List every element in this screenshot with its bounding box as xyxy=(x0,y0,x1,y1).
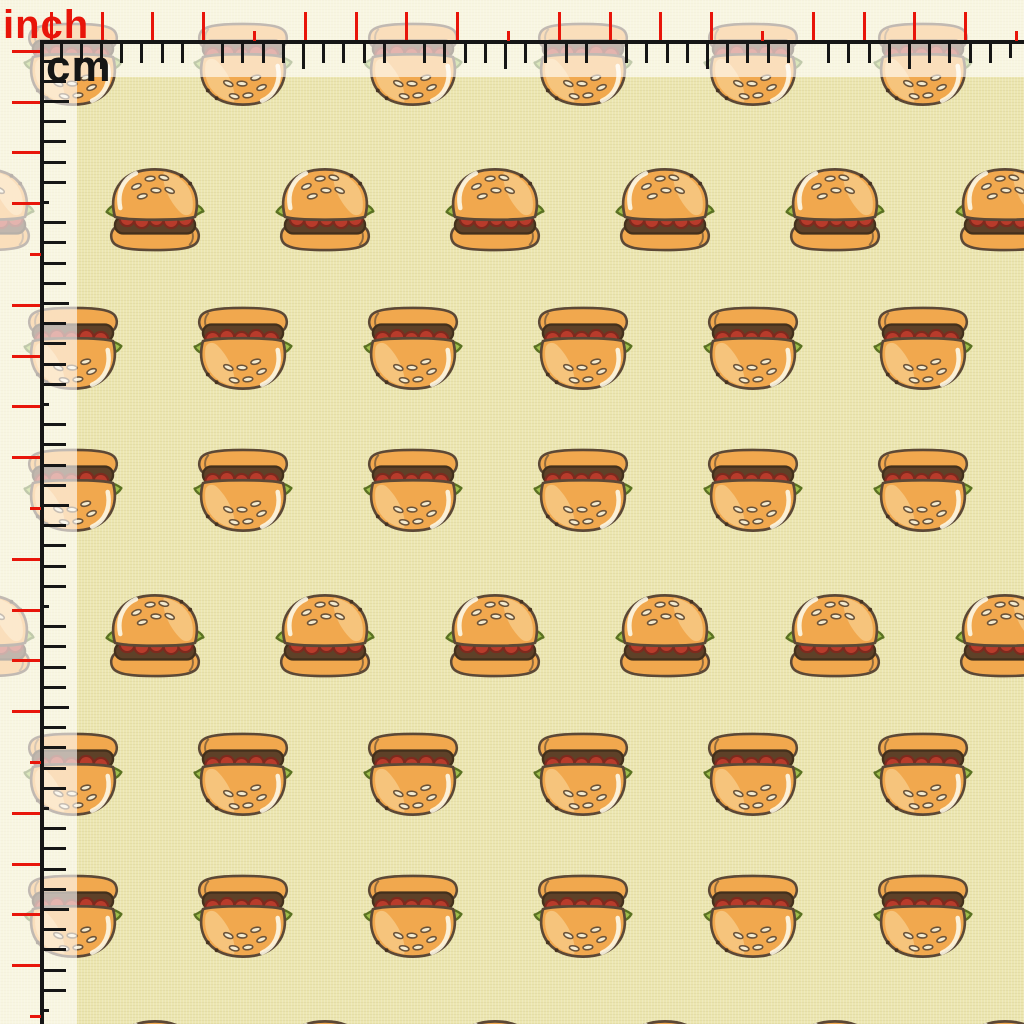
burger-motif-inverted xyxy=(872,732,974,820)
cm-tick xyxy=(44,363,66,366)
cm-tick xyxy=(969,44,972,63)
cm-tick xyxy=(44,565,66,568)
burger-motif-upright xyxy=(954,1016,1024,1024)
burger-motif-inverted xyxy=(362,448,464,536)
inch-tick xyxy=(304,12,307,40)
cm-tick xyxy=(524,44,527,63)
cm-tick xyxy=(44,948,66,951)
inch-tick xyxy=(609,12,612,40)
burger-motif-upright xyxy=(784,590,886,678)
burger-motif-inverted xyxy=(872,306,974,394)
burger-motif-inverted xyxy=(362,306,464,394)
cm-tick-major xyxy=(42,807,49,810)
burger-motif-inverted xyxy=(362,874,464,962)
cm-tick xyxy=(383,44,386,63)
inch-tick-major xyxy=(30,253,41,256)
cm-tick xyxy=(282,44,285,63)
cm-tick xyxy=(44,706,69,709)
burger-motif-upright xyxy=(274,164,376,252)
cm-tick xyxy=(544,44,547,63)
inch-tick xyxy=(12,964,40,967)
cm-tick xyxy=(948,44,951,63)
burger-motif-inverted xyxy=(702,448,804,536)
cm-tick xyxy=(181,44,184,63)
cm-tick xyxy=(44,625,66,628)
burger-motif-upright xyxy=(784,164,886,252)
burger-motif-inverted xyxy=(532,448,634,536)
burger-motif-upright xyxy=(614,590,716,678)
inch-tick xyxy=(12,405,40,408)
cm-tick xyxy=(161,44,164,63)
cm-tick xyxy=(44,282,66,285)
cm-tick xyxy=(484,44,487,63)
cm-tick xyxy=(44,787,66,790)
fabric-swatch-preview: inch cm xyxy=(0,0,1024,1024)
inch-tick xyxy=(12,304,40,307)
cm-scale-line-top xyxy=(40,40,1024,44)
cm-tick xyxy=(44,524,66,527)
inch-tick xyxy=(558,12,561,40)
cm-tick xyxy=(464,44,467,63)
cm-tick xyxy=(565,44,568,63)
cm-tick xyxy=(44,666,66,669)
cm-tick xyxy=(908,44,911,69)
burger-motif-upright xyxy=(104,1016,206,1024)
inch-tick xyxy=(456,12,459,40)
cm-tick xyxy=(44,140,66,143)
cm-tick-major xyxy=(42,403,49,406)
cm-tick xyxy=(44,302,69,305)
inch-tick-major xyxy=(30,507,41,510)
burger-motif-inverted xyxy=(702,732,804,820)
cm-tick xyxy=(44,504,69,507)
cm-tick xyxy=(44,262,66,265)
cm-tick xyxy=(767,44,770,63)
cm-tick xyxy=(44,423,66,426)
inch-tick xyxy=(12,659,40,662)
cm-tick xyxy=(706,44,709,69)
cm-tick xyxy=(44,161,66,164)
cm-tick-major xyxy=(42,605,49,608)
cm-tick xyxy=(726,44,729,63)
inch-tick xyxy=(12,609,40,612)
inch-tick-major xyxy=(30,761,41,764)
inch-tick-major xyxy=(30,1015,41,1018)
cm-tick-major xyxy=(1009,44,1012,58)
cm-tick xyxy=(44,181,66,184)
cm-tick xyxy=(44,928,66,931)
inch-tick-major xyxy=(761,31,764,41)
cm-tick xyxy=(44,827,66,830)
cm-tick xyxy=(140,44,143,63)
burger-motif-inverted xyxy=(362,732,464,820)
burger-motif-upright xyxy=(614,1016,716,1024)
cm-tick xyxy=(928,44,931,63)
cm-tick xyxy=(44,686,66,689)
inch-tick xyxy=(710,12,713,40)
burger-motif-inverted xyxy=(532,306,634,394)
cm-tick xyxy=(322,44,325,63)
inch-tick xyxy=(12,355,40,358)
cm-tick xyxy=(262,44,265,63)
burger-motif-inverted xyxy=(872,448,974,536)
inch-tick xyxy=(12,558,40,561)
cm-tick xyxy=(585,44,588,63)
cm-tick xyxy=(847,44,850,63)
cm-tick xyxy=(44,585,66,588)
inch-tick-major xyxy=(253,31,256,41)
burger-motif-upright xyxy=(444,1016,546,1024)
inch-tick xyxy=(12,710,40,713)
cm-tick xyxy=(888,44,891,63)
cm-tick xyxy=(241,44,244,63)
burger-motif-inverted xyxy=(192,448,294,536)
burger-motif-inverted xyxy=(532,732,634,820)
burger-motif-upright xyxy=(614,164,716,252)
ruler-overlay-left xyxy=(0,77,77,1024)
inch-tick xyxy=(913,12,916,40)
cm-unit-label: cm xyxy=(46,42,112,92)
inch-tick xyxy=(12,812,40,815)
cm-tick xyxy=(686,44,689,63)
burger-motif-inverted xyxy=(702,306,804,394)
burger-motif-upright xyxy=(444,164,546,252)
cm-tick xyxy=(423,44,426,63)
cm-tick xyxy=(44,726,66,729)
cm-tick xyxy=(44,544,66,547)
cm-tick xyxy=(625,44,628,63)
burger-motif-upright xyxy=(954,590,1024,678)
cm-tick xyxy=(302,44,305,69)
cm-tick xyxy=(44,241,66,244)
cm-tick xyxy=(44,342,66,345)
cm-tick xyxy=(44,464,66,467)
burger-motif-inverted xyxy=(532,874,634,962)
cm-tick xyxy=(44,383,66,386)
cm-tick xyxy=(44,322,66,325)
burger-motif-upright xyxy=(104,590,206,678)
burger-motif-upright xyxy=(104,164,206,252)
burger-motif-upright xyxy=(274,1016,376,1024)
cm-tick xyxy=(44,767,66,770)
inch-tick xyxy=(12,50,40,53)
cm-tick xyxy=(120,44,123,63)
burger-motif-upright xyxy=(274,590,376,678)
cm-tick xyxy=(645,44,648,63)
inch-tick xyxy=(355,12,358,40)
cm-tick xyxy=(44,443,66,446)
cm-tick xyxy=(363,44,366,63)
inch-tick xyxy=(659,12,662,40)
burger-motif-inverted xyxy=(192,306,294,394)
cm-tick xyxy=(868,44,871,63)
inch-tick xyxy=(12,863,40,866)
cm-tick-major xyxy=(42,1009,49,1012)
cm-tick xyxy=(44,221,66,224)
burger-motif-upright xyxy=(954,164,1024,252)
cm-tick xyxy=(787,44,790,63)
inch-tick xyxy=(12,456,40,459)
inch-tick xyxy=(12,151,40,154)
inch-tick xyxy=(964,12,967,40)
cm-tick xyxy=(44,989,66,992)
inch-tick xyxy=(405,12,408,40)
cm-tick xyxy=(44,888,66,891)
cm-tick-major xyxy=(42,201,49,204)
cm-tick xyxy=(504,44,507,69)
inch-tick xyxy=(812,12,815,40)
burger-motif-upright xyxy=(784,1016,886,1024)
cm-tick xyxy=(44,847,66,850)
cm-tick xyxy=(443,44,446,63)
cm-scale-line-left xyxy=(40,40,44,1024)
cm-tick xyxy=(666,44,669,63)
cm-tick xyxy=(44,969,66,972)
inch-tick xyxy=(863,12,866,40)
burger-motif-inverted xyxy=(192,732,294,820)
cm-tick xyxy=(44,645,66,648)
inch-tick-major xyxy=(507,31,510,41)
cm-tick xyxy=(746,44,749,63)
burger-motif-inverted xyxy=(872,874,974,962)
inch-tick xyxy=(151,12,154,40)
cm-tick xyxy=(342,44,345,63)
burger-motif-upright xyxy=(444,590,546,678)
inch-tick-major xyxy=(1015,31,1018,41)
inch-tick xyxy=(12,913,40,916)
burger-motif-inverted xyxy=(702,874,804,962)
inch-tick xyxy=(12,202,40,205)
inch-tick xyxy=(12,101,40,104)
cm-tick xyxy=(44,908,69,911)
cm-tick xyxy=(989,44,992,63)
cm-tick xyxy=(44,120,66,123)
fabric-pattern xyxy=(0,0,1024,1024)
cm-tick xyxy=(221,44,224,63)
cm-tick xyxy=(827,44,830,63)
inch-tick xyxy=(202,12,205,40)
cm-tick xyxy=(44,484,66,487)
burger-motif-inverted xyxy=(192,874,294,962)
cm-tick xyxy=(44,746,66,749)
cm-tick xyxy=(44,100,69,103)
cm-tick xyxy=(44,868,66,871)
inch-tick xyxy=(101,12,104,40)
